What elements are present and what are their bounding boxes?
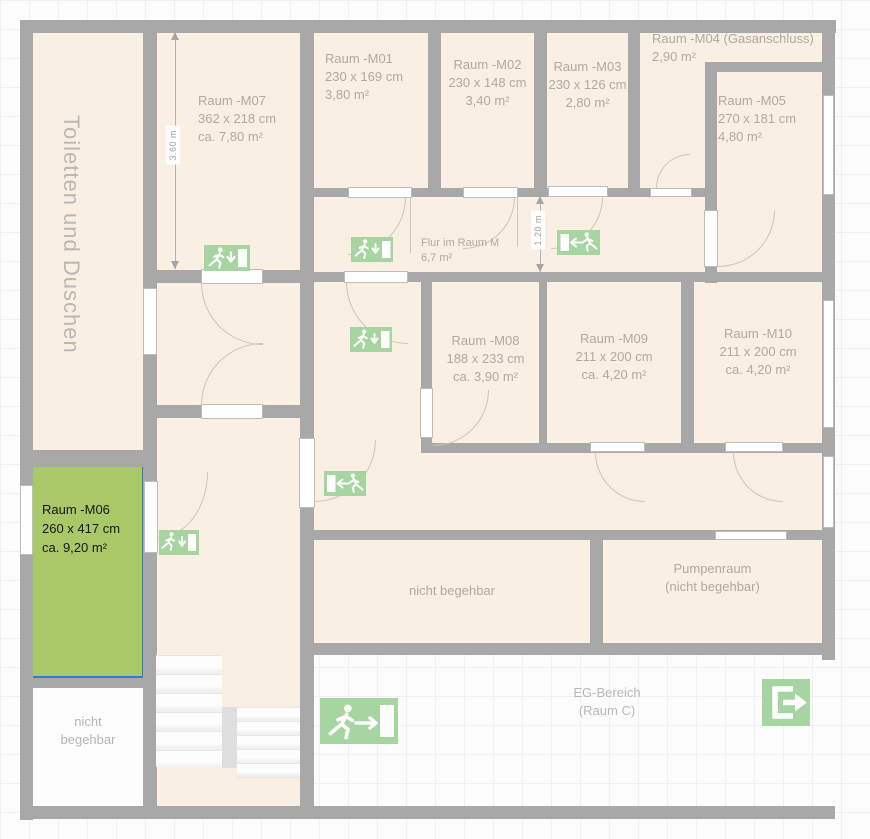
room-area: 3,80 m² — [325, 86, 403, 104]
door-m10 — [725, 442, 783, 452]
room-area: ca. 7,80 m² — [198, 128, 276, 146]
room-label-m09: Raum -M09 211 x 200 cm ca. 4,20 m² — [547, 330, 681, 384]
room-label-m05: Raum -M05 270 x 181 cm 4,80 m² — [718, 92, 796, 146]
room-area: 6,7 m² — [421, 251, 499, 266]
room-size: 362 x 218 cm — [198, 110, 276, 128]
room-area: 2,80 m² — [547, 94, 628, 112]
wall — [534, 20, 547, 197]
room-name: Raum -M07 — [198, 92, 276, 110]
room-name: Raum -M10 — [694, 325, 822, 343]
dimension-label-flur: 1.20 m — [531, 211, 545, 250]
room-label-m10: Raum -M10 211 x 200 cm ca. 4,20 m² — [694, 325, 822, 379]
door-m05 — [704, 210, 718, 267]
door-leaf-line — [517, 197, 518, 247]
door-m04 — [650, 188, 692, 197]
room-area: ca. 4,20 m² — [547, 366, 681, 384]
window — [823, 300, 834, 428]
emergency-exit-runner-left-icon — [324, 471, 366, 496]
dimension-text: 1.20 m — [533, 215, 543, 246]
room-area: 3,40 m² — [441, 92, 534, 110]
room-name: nicht — [33, 713, 143, 731]
room-name: EG-Bereich — [537, 684, 677, 702]
door-m06 — [144, 481, 158, 553]
room-label-nicht-begehbar-center: nicht begehbar — [314, 582, 590, 600]
room-label-eg-bereich: EG-Bereich (Raum C) — [537, 684, 677, 720]
door-stairwell — [201, 404, 263, 419]
room-size: 230 x 126 cm — [547, 76, 628, 94]
window — [823, 456, 834, 528]
emergency-exit-runner-right-icon — [320, 698, 398, 744]
room-area: ca. 4,20 m² — [694, 361, 822, 379]
window — [20, 485, 33, 555]
door-stair-central — [299, 438, 315, 508]
emergency-exit-runner-left-icon — [557, 230, 600, 255]
stairs-landing — [222, 707, 237, 768]
dimension-arrow-icon — [536, 196, 544, 204]
door-m09 — [590, 442, 645, 452]
room-size: 260 x 417 cm — [42, 519, 120, 538]
room-size: 211 x 200 cm — [694, 343, 822, 361]
wall — [681, 282, 694, 443]
wall — [428, 20, 441, 197]
wall — [20, 806, 835, 819]
room-size: 188 x 233 cm — [432, 350, 539, 368]
emergency-exit-runner-down-icon — [351, 237, 393, 262]
wall — [590, 530, 603, 655]
room-label-pumpenraum: Pumpenraum (nicht begehbar) — [603, 560, 822, 596]
room-name: Raum -M01 — [325, 50, 403, 68]
room-size: 211 x 200 cm — [547, 348, 681, 366]
room-name: Raum -M08 — [432, 332, 539, 350]
dimension-arrow-icon — [536, 264, 544, 272]
room-name: (nicht begehbar) — [603, 578, 822, 596]
room-name: Raum -M02 — [441, 56, 534, 74]
room-label-m07: Raum -M07 362 x 218 cm ca. 7,80 m² — [198, 92, 276, 146]
door-m03 — [548, 186, 608, 197]
room-name: Toiletten und Duschen — [59, 115, 84, 354]
room-name: Pumpenraum — [603, 560, 822, 578]
room-label-nicht-begehbar-left: nicht begehbar — [33, 713, 143, 749]
room-size: 270 x 181 cm — [718, 110, 796, 128]
wall — [20, 20, 33, 820]
room-area: ca. 9,20 m² — [42, 538, 120, 557]
window — [143, 288, 157, 355]
wall — [300, 643, 835, 655]
room-name: nicht begehbar — [314, 582, 590, 600]
room-size: 230 x 169 cm — [325, 68, 403, 86]
wall — [539, 282, 547, 443]
room-name: Raum -M03 — [547, 58, 628, 76]
floorplan-canvas: 3.60 m 1.20 m Toiletten und Duschen Raum… — [0, 0, 870, 839]
room-name: begehbar — [33, 731, 143, 749]
room-name: Raum -M05 — [718, 92, 796, 110]
dimension-text: 3.60 m — [168, 130, 178, 161]
dimension-label-m07: 3.60 m — [166, 126, 180, 165]
emergency-exit-runner-down-icon — [350, 327, 392, 352]
door-leaf-line — [410, 197, 411, 253]
room-area: ca. 3,90 m² — [432, 368, 539, 386]
emergency-exit-runner-down-icon — [204, 245, 250, 271]
room-name: Raum -M06 — [42, 500, 120, 519]
room-label-flur: Flur im Raum M 6,7 m² — [421, 236, 499, 266]
room-label-m08: Raum -M08 188 x 233 cm ca. 3,90 m² — [432, 332, 539, 386]
room-label-m02: Raum -M02 230 x 148 cm 3,40 m² — [441, 56, 534, 110]
room-name: (Raum C) — [537, 702, 677, 720]
room-name: Flur im Raum M — [421, 236, 499, 251]
dimension-arrow-icon — [171, 261, 179, 269]
wall — [20, 450, 157, 467]
room-name: Raum -M09 — [547, 330, 681, 348]
room-m06-selected[interactable] — [29, 465, 144, 678]
stairs-flight-1 — [156, 655, 222, 767]
room-label-m03: Raum -M03 230 x 126 cm 2,80 m² — [547, 58, 628, 112]
room-label-m04: Raum -M04 (Gasanschluss) 2,90 m² — [652, 30, 814, 66]
wall — [628, 20, 640, 197]
dimension-arrow-icon — [171, 32, 179, 40]
room-label-toiletten: Toiletten und Duschen — [58, 115, 84, 354]
room-name: Raum -M04 (Gasanschluss) — [652, 30, 814, 48]
exit-door-arrow-icon — [762, 679, 810, 726]
window-pumpenraum — [715, 531, 787, 540]
stairs-flight-2 — [237, 707, 300, 778]
room-toiletten[interactable] — [33, 33, 143, 450]
door-m07 — [201, 269, 263, 284]
emergency-exit-runner-down-icon — [159, 530, 199, 555]
room-area: 4,80 m² — [718, 128, 796, 146]
door-m08 — [420, 388, 433, 438]
room-area: 2,90 m² — [652, 48, 814, 66]
room-size: 230 x 148 cm — [441, 74, 534, 92]
room-label-m01: Raum -M01 230 x 169 cm 3,80 m² — [325, 50, 403, 104]
room-label-m06: Raum -M06 260 x 417 cm ca. 9,20 m² — [42, 500, 120, 557]
window — [823, 95, 834, 195]
wall — [20, 678, 157, 688]
